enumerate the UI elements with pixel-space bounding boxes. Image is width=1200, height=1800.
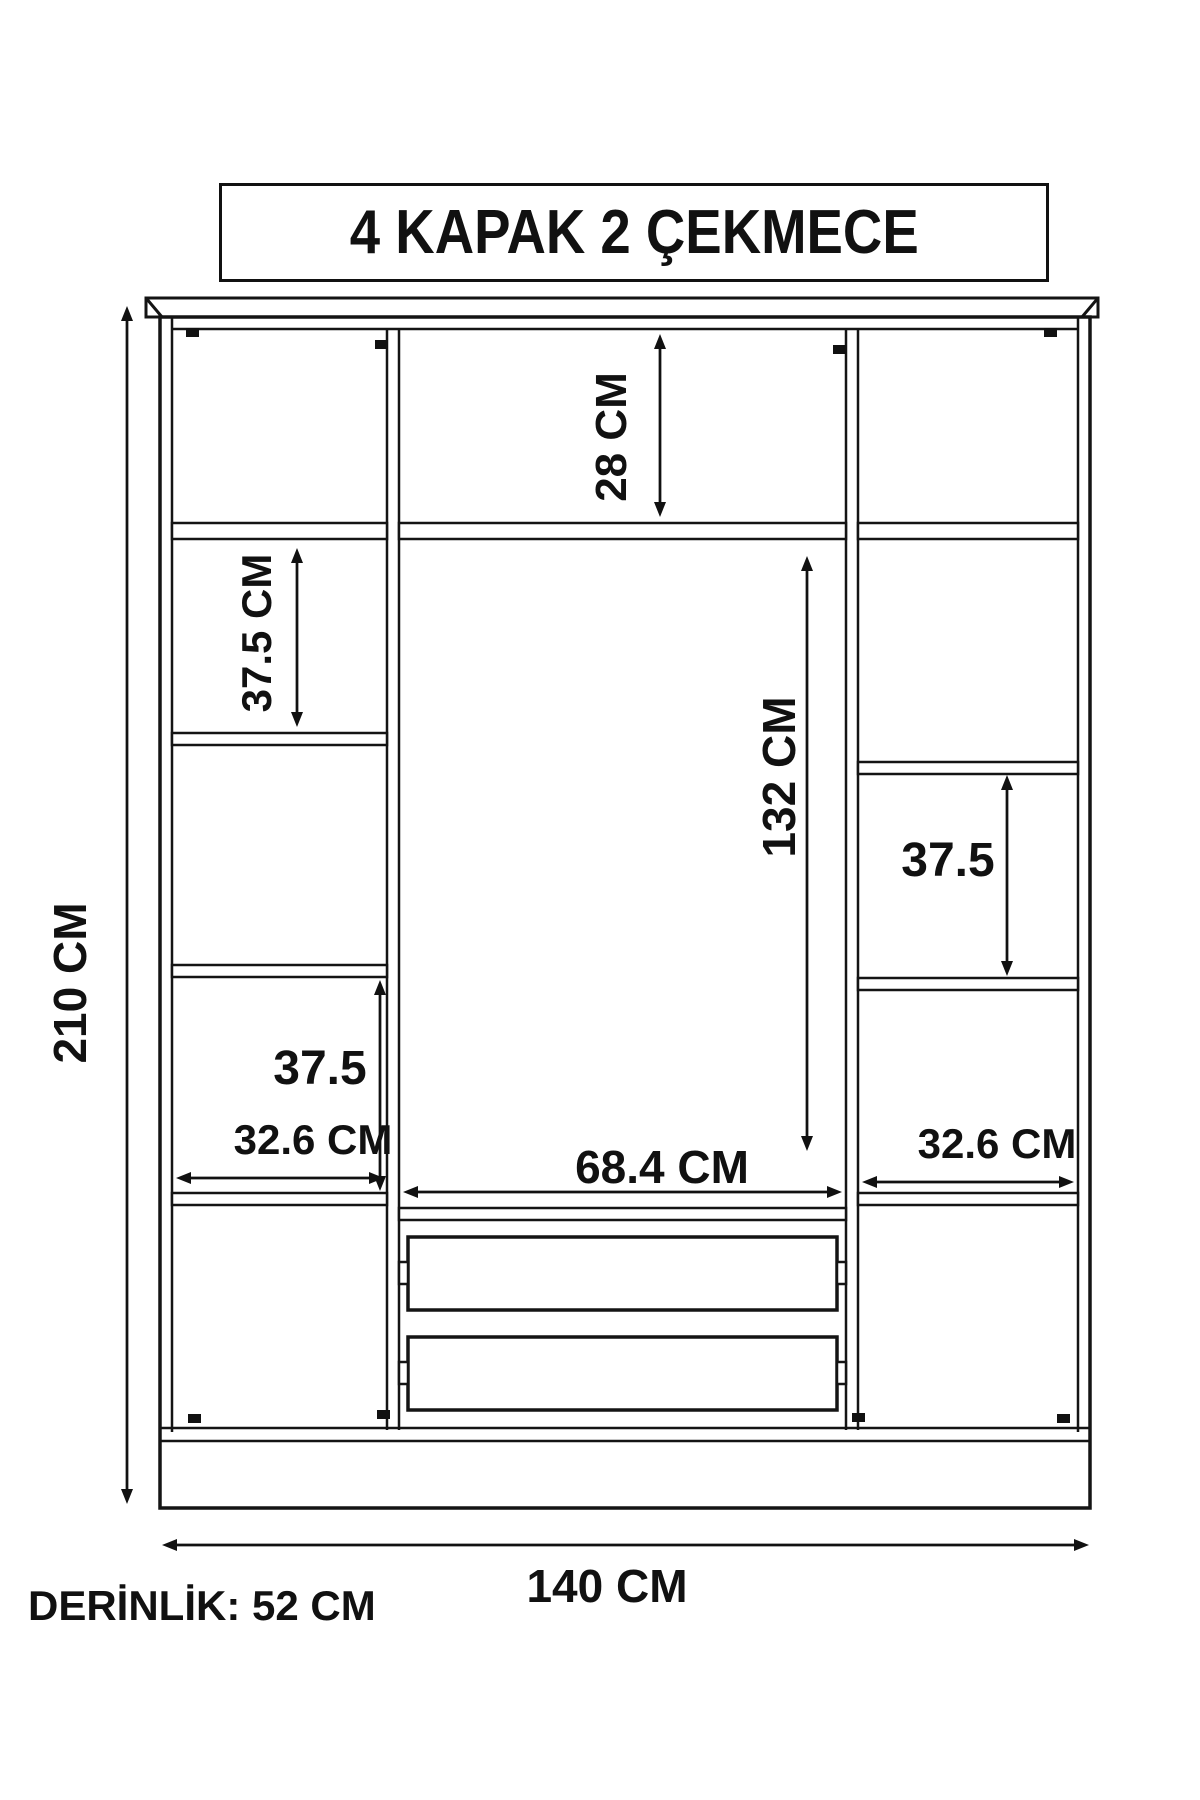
dim-label-overall-width: 140 CM: [526, 1563, 687, 1609]
left-shelf-4: [172, 1193, 387, 1205]
dim-label-middle-door-height: 132 CM: [756, 696, 802, 857]
dim-label-left-shelf-section: 37.5 CM: [236, 554, 278, 713]
wardrobe-technical-diagram: 4 KAPAK 2 ÇEKMECE 210 CM 140 CM 28 CM 37…: [0, 0, 1200, 1800]
left-shelf-3: [172, 965, 387, 977]
cornice-bevel-right: [1082, 298, 1098, 317]
dim-label-left-lower-section: 37.5: [273, 1045, 366, 1093]
left-shelf-2: [172, 733, 387, 745]
hinge-mark-bottom-middle-right: [852, 1413, 865, 1422]
drawer1-right-runner: [837, 1262, 846, 1284]
dim-label-overall-height: 210 CM: [47, 902, 93, 1063]
hinge-mark-top-middle-right: [833, 345, 846, 354]
hinge-mark-bottom-middle-left: [377, 1410, 390, 1419]
title-plate: 4 KAPAK 2 ÇEKMECE: [219, 183, 1049, 282]
drawer-front-2: [408, 1337, 837, 1410]
hinge-mark-top-left: [186, 328, 199, 337]
right-shelf-1: [858, 523, 1078, 539]
depth-note: DERİNLİK: 52 CM: [28, 1585, 376, 1627]
dim-label-left-column-width: 32.6 CM: [234, 1119, 393, 1161]
dim-label-right-column-width: 32.6 CM: [918, 1123, 1077, 1165]
hinge-mark-top-right: [1044, 328, 1057, 337]
dim-label-top-section: 28 CM: [590, 372, 634, 502]
drawer2-left-runner: [399, 1362, 408, 1384]
dim-label-middle-section-width: 68.4 CM: [575, 1144, 749, 1190]
left-shelf-1: [172, 523, 387, 539]
drawer-top-shelf: [399, 1208, 846, 1220]
diagram-title: 4 KAPAK 2 ÇEKMECE: [350, 197, 919, 268]
middle-top-shelf: [399, 523, 846, 539]
cornice-bevel-left: [146, 298, 162, 317]
right-shelf-4: [858, 1193, 1078, 1205]
hinge-mark-bottom-left: [188, 1414, 201, 1423]
hinge-mark-top-middle-left: [375, 340, 388, 349]
hinge-mark-bottom-right: [1057, 1414, 1070, 1423]
drawer-front-1: [408, 1237, 837, 1310]
right-shelf-2: [858, 762, 1078, 774]
drawer2-right-runner: [837, 1362, 846, 1384]
drawer1-left-runner: [399, 1262, 408, 1284]
dim-label-right-shelf-section: 37.5: [901, 837, 994, 885]
right-shelf-3: [858, 978, 1078, 990]
cornice: [146, 298, 1098, 317]
